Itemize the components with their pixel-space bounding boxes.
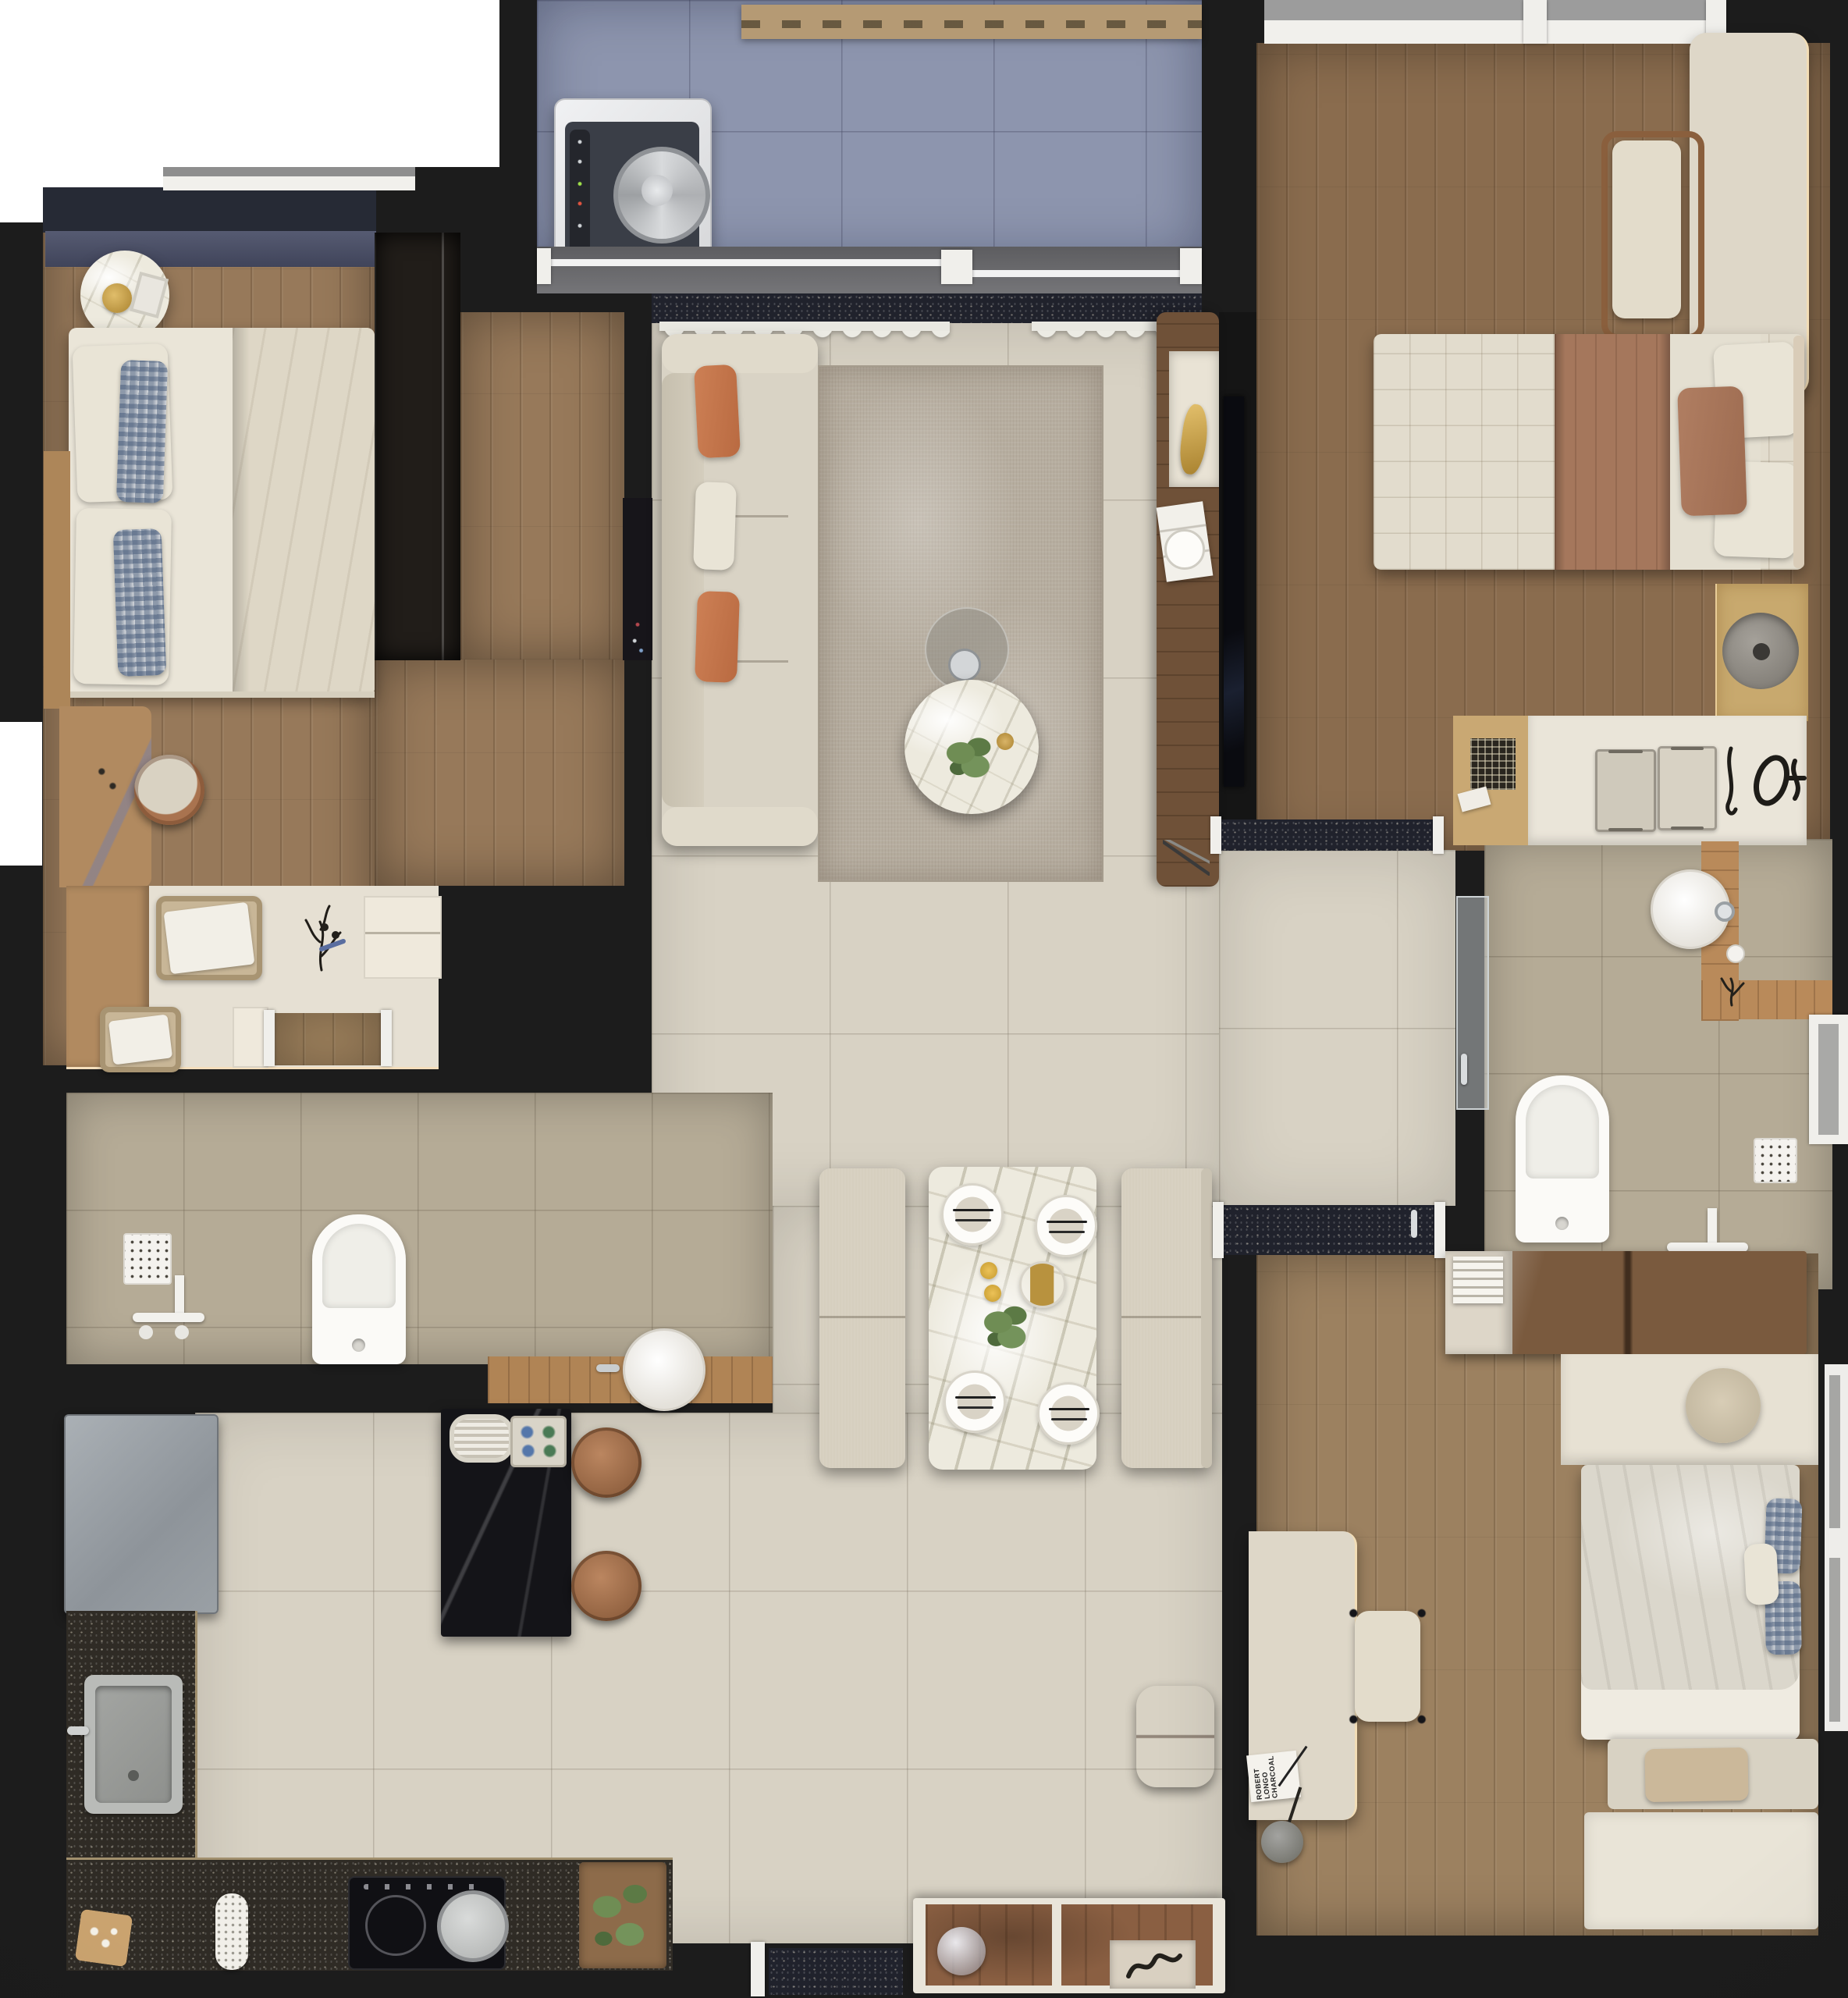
bedroom3-books-stack [1453, 1257, 1503, 1303]
balc-door-jamb-right [1180, 248, 1202, 284]
master-bed-brown-runner [1555, 334, 1670, 570]
master-pillow-accent [1677, 386, 1747, 517]
bedroom1-wall-desk [44, 451, 70, 709]
bedroom1-wall-shadow [43, 187, 376, 233]
place-setting-2 [1035, 1195, 1097, 1257]
bathroom2-floor-drain [1754, 1138, 1797, 1183]
desk-book-title: ROBERT LONGO CHARCOAL [1251, 1752, 1296, 1800]
bag-straps-icon [1717, 738, 1811, 831]
island-stool-2 [571, 1551, 641, 1621]
magazine-plate [1164, 529, 1205, 570]
kitchen-sink-drain [128, 1770, 139, 1781]
kitchen-plant-tray [579, 1862, 666, 1968]
towels [164, 902, 255, 975]
bedroom1-window-bar [163, 167, 415, 176]
bedroom1-floor-dressing [375, 659, 624, 886]
towels [108, 1015, 172, 1065]
balcony-ledge [741, 5, 1202, 39]
console-remote-items [1163, 840, 1210, 876]
exterior-white-strip-left [0, 722, 42, 866]
kitchen-sink-basin [95, 1686, 172, 1803]
entry-door-jamb [751, 1942, 765, 1996]
bathroom2-door-handle [1461, 1054, 1467, 1085]
bathroom1-faucet [596, 1364, 620, 1372]
entry-pouf [1136, 1686, 1214, 1787]
towel-basket-2 [100, 1007, 181, 1072]
master-window-mullion [1523, 0, 1547, 44]
desk-book: ROBERT LONGO CHARCOAL [1246, 1751, 1301, 1802]
master-door-jamb-left [1210, 816, 1221, 854]
master-door-threshold [1220, 819, 1434, 851]
sofa-armrest-bottom [662, 807, 818, 846]
bathroom2-side-door [1818, 1024, 1839, 1135]
master-door-jamb-right [1433, 816, 1444, 854]
bedroom1-door-jamb-right [381, 1010, 392, 1066]
bedroom1-duvet [233, 328, 375, 696]
sofa-pillow-white [693, 482, 737, 571]
bathroom2-faucet [1715, 901, 1735, 922]
dining-centerpiece-plant [982, 1299, 1033, 1355]
bedroom3-door-threshold [1222, 1205, 1436, 1255]
bathroom1-shower-knob-left [139, 1325, 153, 1339]
bedroom1-floor-strip [460, 312, 624, 659]
accessory-tray-2 [1658, 746, 1717, 830]
bedroom3-white-pillow [1743, 1543, 1779, 1605]
sofa-pillow-orange-top [694, 364, 741, 459]
bedroom1-door-jamb-left [264, 1010, 275, 1066]
bedroom1-stool [134, 755, 204, 825]
plant-sprig-icon [1714, 972, 1750, 1008]
washing-machine-controls [570, 130, 590, 253]
bathroom1-floor-drain [123, 1233, 172, 1285]
kitchen-faucet [67, 1726, 89, 1735]
tv-screen [1224, 396, 1244, 787]
sofa-armrest-top [662, 334, 818, 373]
accessory-tray-1 [1595, 749, 1656, 832]
washing-machine-drum-center [641, 175, 673, 206]
bathroom2-cup [1726, 944, 1745, 963]
bathroom1-shower-bar [133, 1313, 204, 1322]
desk-lamp-shade [1261, 1821, 1303, 1863]
bedroom3-chair-cushion [1355, 1611, 1420, 1722]
cutting-board [75, 1909, 133, 1968]
bedroom3-door-jamb-left [1213, 1202, 1224, 1258]
master-window-sill [1264, 20, 1726, 44]
bedroom3-door-handle [1411, 1210, 1417, 1238]
island-stool-1 [571, 1427, 641, 1498]
master-vanity-drain [1753, 643, 1770, 660]
cooking-pot [437, 1890, 509, 1962]
coffee-table-gold-dish [997, 733, 1014, 750]
bedroom1-window-sill [163, 176, 415, 190]
sofa-pillow-orange-bottom [695, 591, 740, 683]
refrigerator [64, 1414, 219, 1614]
bedroom1-bed-footboard [69, 691, 375, 698]
place-setting-4 [1037, 1382, 1100, 1445]
bedroom3-round-cushion [1686, 1368, 1761, 1443]
bedroom1-door-threshold [273, 1013, 382, 1065]
bedroom3-floor-mat [1584, 1812, 1818, 1929]
entry-console-divider [1052, 1904, 1061, 1986]
jewelry-decor-icon [315, 918, 350, 957]
closet-grate [1470, 738, 1516, 790]
bedroom1-wardrobe [375, 233, 460, 660]
floorplan-canvas: ROBERT LONGO CHARCOAL [0, 0, 1848, 1998]
glass-dome-decor [937, 1927, 986, 1975]
side-cabinet-bottles [623, 498, 652, 660]
exterior-white-strip-top [163, 0, 499, 167]
island-bread-basket [450, 1414, 514, 1463]
bedroom3-door-jamb-right [1434, 1202, 1445, 1258]
balc-door-jamb-mid [941, 250, 972, 284]
towel-basket-1 [156, 896, 262, 980]
bathroom1-shower-knob-right [175, 1325, 189, 1339]
bathroom1-toilet [312, 1214, 406, 1364]
balc-door-jamb-left [537, 248, 551, 284]
dining-bench-backrest [1201, 1168, 1212, 1468]
master-desk-chair-cushion [1612, 140, 1681, 318]
bathroom2-toilet [1516, 1075, 1609, 1243]
bedroom1-checkered-pillow-bottom [113, 528, 167, 677]
bedroom3-window-glass-bottom [1829, 1558, 1840, 1722]
bathroom1-shower-riser [175, 1275, 184, 1316]
bathroom1-floor [66, 1093, 773, 1364]
bedroom3-bench-pillow [1644, 1747, 1748, 1802]
balcony-door-track-right [958, 270, 1182, 277]
bathroom2-shower-riser [1708, 1208, 1717, 1247]
sculpture-squiggle-icon [1122, 1945, 1185, 1986]
master-headboard [1793, 336, 1804, 568]
island-cup-tray [510, 1416, 567, 1467]
dining-bench-left [819, 1168, 905, 1468]
kitchen-grater-utensil [215, 1893, 248, 1970]
entry-door-threshold [769, 1948, 903, 1995]
coffee-table-plant [943, 732, 999, 782]
place-setting-1 [941, 1183, 1004, 1246]
dresser-drawer-unit [364, 896, 442, 979]
bedroom3-window-glass-top [1829, 1375, 1840, 1528]
bedroom1-checkered-pillow-top [116, 360, 168, 503]
yellow-cup-1 [980, 1262, 997, 1279]
bathroom1-sink [623, 1328, 705, 1411]
balcony-door-track-left [546, 259, 946, 266]
place-setting-3 [944, 1371, 1006, 1433]
master-window-bar [1264, 0, 1726, 20]
corridor-floor [1219, 850, 1455, 1206]
balcony-threshold [652, 293, 1202, 323]
gold-clock-decor [102, 283, 132, 313]
dining-bench-right [1121, 1168, 1212, 1468]
mirror-tray [948, 649, 981, 681]
stove-burner [365, 1895, 426, 1956]
